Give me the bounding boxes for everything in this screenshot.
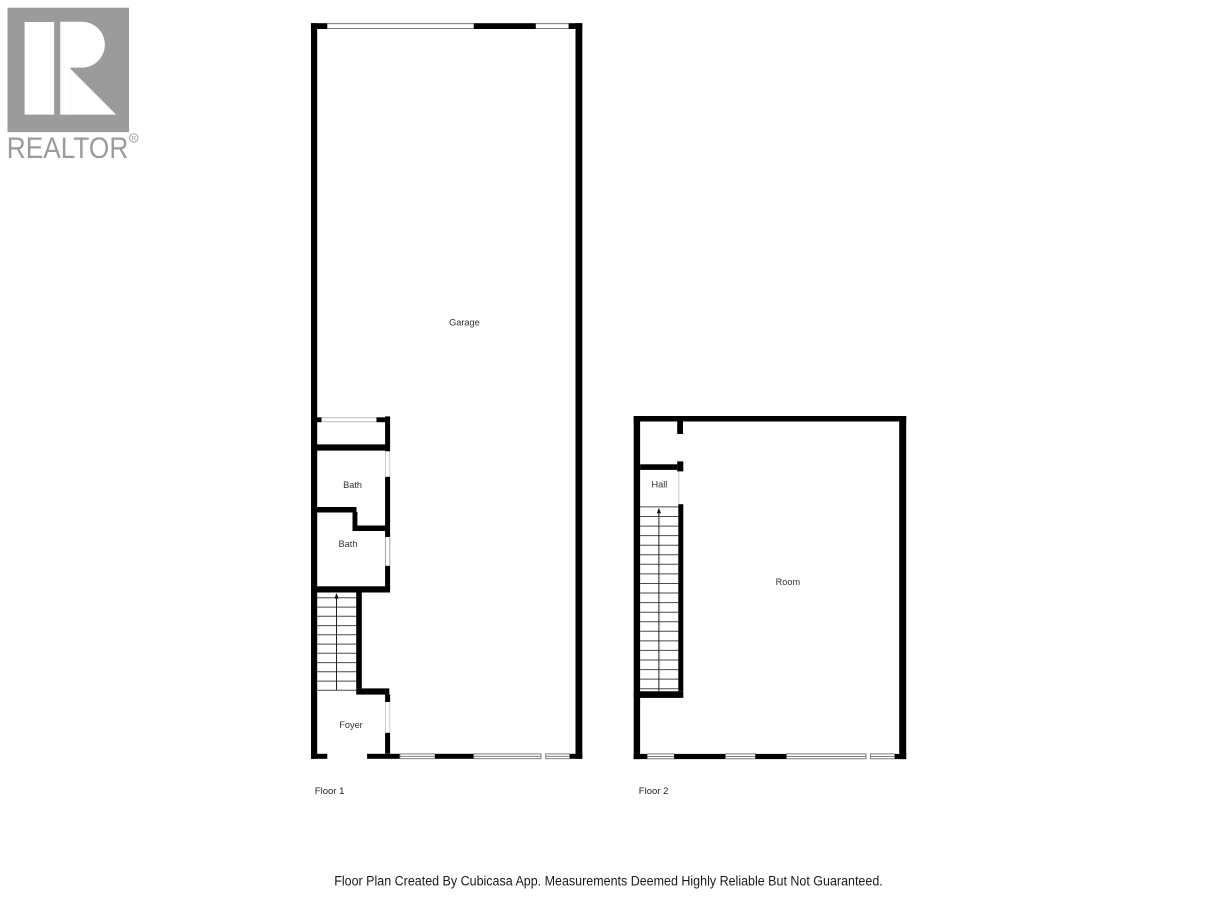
svg-text:REALTOR: REALTOR — [7, 132, 129, 165]
svg-text:Bath: Bath — [343, 480, 362, 490]
svg-text:Foyer: Foyer — [339, 720, 363, 730]
svg-text:Floor 2: Floor 2 — [639, 786, 669, 797]
svg-text:Room: Room — [776, 577, 801, 587]
svg-text:Garage: Garage — [449, 318, 480, 328]
svg-text:Floor Plan Created By Cubicasa: Floor Plan Created By Cubicasa App. Meas… — [334, 874, 883, 889]
svg-text:Bath: Bath — [339, 539, 358, 549]
svg-text:Floor 1: Floor 1 — [315, 786, 345, 797]
svg-text:Hall: Hall — [651, 479, 667, 489]
svg-text:R: R — [131, 135, 136, 142]
